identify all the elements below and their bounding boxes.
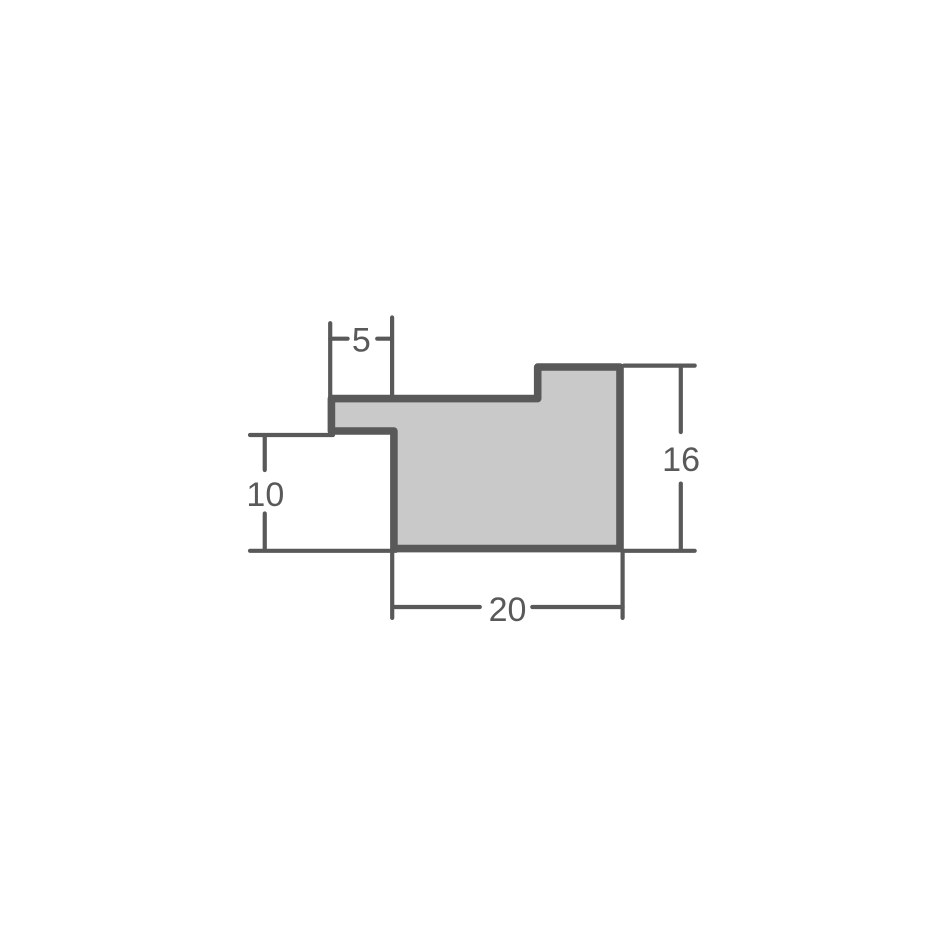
svg-text:5: 5	[352, 321, 371, 359]
svg-text:10: 10	[246, 476, 284, 514]
svg-text:16: 16	[662, 441, 700, 479]
svg-text:20: 20	[489, 591, 527, 629]
